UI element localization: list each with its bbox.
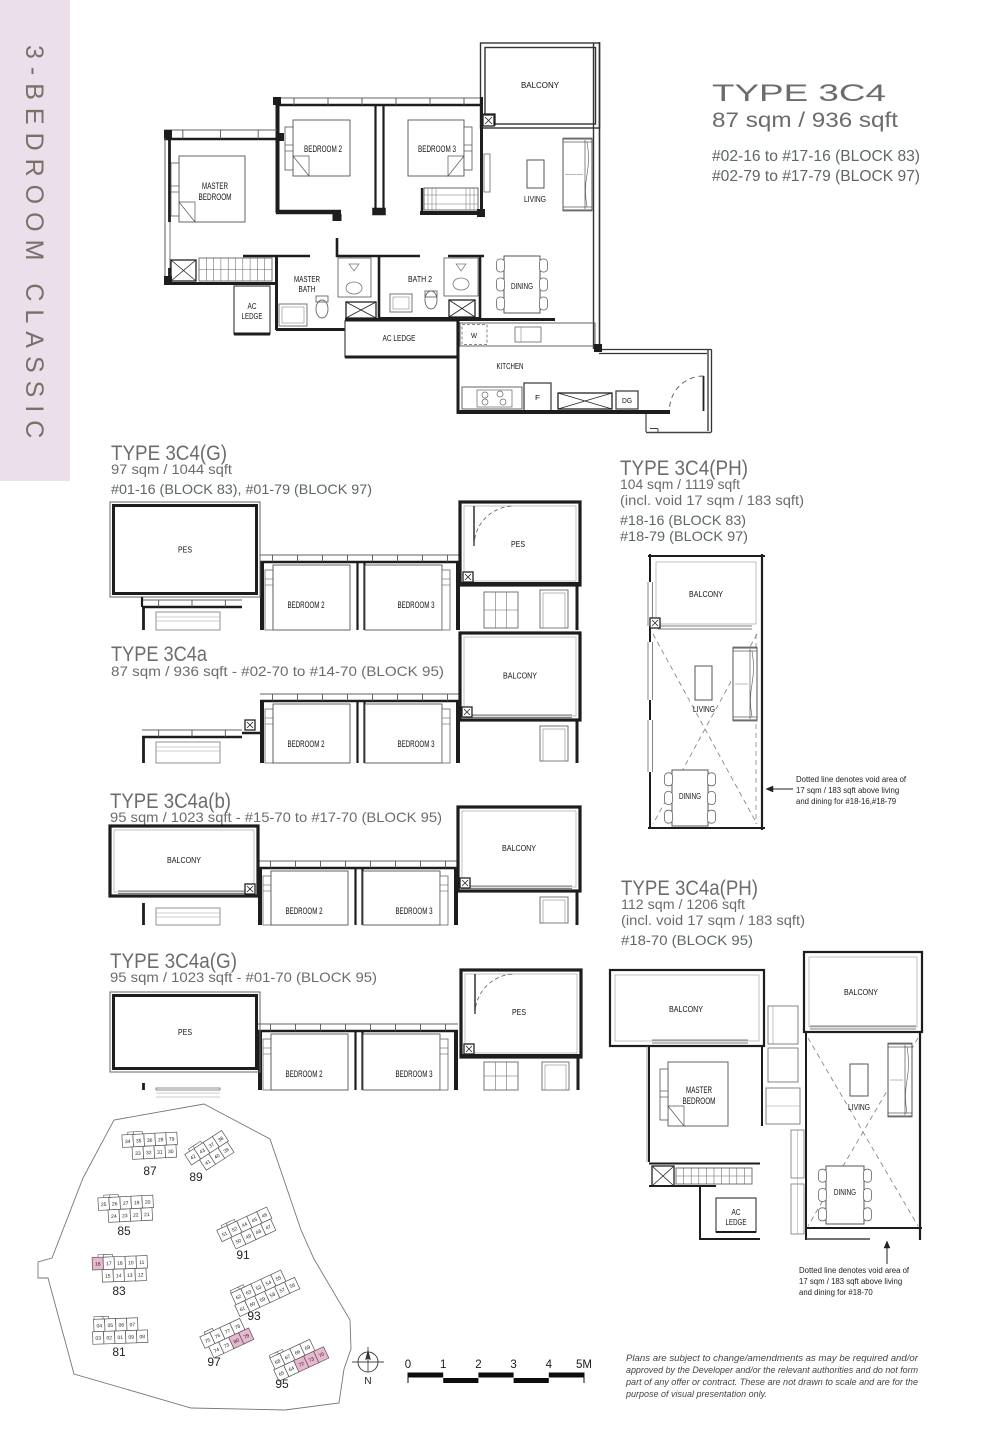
svg-text:DINING: DINING xyxy=(834,1187,856,1197)
svg-text:17: 17 xyxy=(106,1261,112,1267)
svg-text:09: 09 xyxy=(128,1335,134,1341)
svg-text:BATH: BATH xyxy=(299,285,316,294)
svg-text:03: 03 xyxy=(95,1336,101,1342)
svg-text:05: 05 xyxy=(107,1323,113,1329)
svg-text:F: F xyxy=(535,395,540,402)
svg-text:112 sqm / 1206 sqft: 112 sqm / 1206 sqft xyxy=(621,896,745,912)
svg-text:25: 25 xyxy=(101,1202,107,1208)
svg-text:91: 91 xyxy=(236,1248,250,1262)
svg-text:06: 06 xyxy=(118,1323,124,1329)
svg-text:DG: DG xyxy=(622,398,632,405)
svg-text:and dining for #18-70: and dining for #18-70 xyxy=(799,1288,873,1297)
svg-text:BALCONY: BALCONY xyxy=(502,843,536,853)
svg-text:95 sqm / 1023 sqft - #15-70 to: 95 sqm / 1023 sqft - #15-70 to #17-70 (B… xyxy=(110,809,442,825)
svg-text:N: N xyxy=(364,1376,371,1387)
svg-text:87 sqm / 936 sqft: 87 sqm / 936 sqft xyxy=(712,109,898,132)
svg-text:purpose of visual presentation: purpose of visual presentation only. xyxy=(625,1389,767,1399)
svg-text:BALCONY: BALCONY xyxy=(689,589,723,599)
svg-text:#02-16 to #17-16 (BLOCK 83): #02-16 to #17-16 (BLOCK 83) xyxy=(712,148,920,165)
svg-text:5M: 5M xyxy=(576,1359,592,1371)
svg-text:97: 97 xyxy=(207,1355,221,1369)
svg-text:34: 34 xyxy=(125,1139,131,1145)
svg-text:35: 35 xyxy=(136,1138,142,1144)
svg-text:AC LEDGE: AC LEDGE xyxy=(383,334,416,343)
svg-text:15: 15 xyxy=(105,1274,111,1280)
svg-text:BEDROOM 2: BEDROOM 2 xyxy=(286,1069,323,1079)
svg-text:BEDROOM: BEDROOM xyxy=(683,1096,716,1106)
svg-text:33: 33 xyxy=(135,1151,141,1157)
svg-text:89: 89 xyxy=(189,1170,203,1184)
svg-text:BEDROOM 2: BEDROOM 2 xyxy=(304,144,342,154)
svg-text:#18-70 (BLOCK 95): #18-70 (BLOCK 95) xyxy=(621,932,753,948)
svg-text:#18-16 (BLOCK 83): #18-16 (BLOCK 83) xyxy=(620,512,746,528)
svg-text:87: 87 xyxy=(143,1164,157,1178)
svg-text:#18-79 (BLOCK 97): #18-79 (BLOCK 97) xyxy=(620,528,748,544)
svg-text:LIVING: LIVING xyxy=(848,1102,870,1112)
svg-text:95: 95 xyxy=(275,1377,289,1391)
svg-text:04: 04 xyxy=(96,1323,102,1329)
svg-text:87 sqm / 936 sqft - #02-70 to: 87 sqm / 936 sqft - #02-70 to #14-70 (BL… xyxy=(111,663,444,679)
svg-text:36: 36 xyxy=(147,1138,153,1144)
svg-text:BEDROOM 3: BEDROOM 3 xyxy=(398,739,435,749)
svg-text:BALCONY: BALCONY xyxy=(669,1004,703,1014)
svg-text:10: 10 xyxy=(128,1260,134,1266)
svg-text:17 sqm / 183 sqft above livin: 17 sqm / 183 sqft above living xyxy=(799,1277,902,1286)
svg-text:07: 07 xyxy=(129,1322,135,1328)
svg-text:AC: AC xyxy=(248,302,257,311)
svg-text:1: 1 xyxy=(440,1359,446,1371)
svg-text:85: 85 xyxy=(117,1224,131,1238)
svg-text:32: 32 xyxy=(146,1150,152,1156)
svg-text:83: 83 xyxy=(112,1284,126,1298)
svg-text:0: 0 xyxy=(405,1359,411,1371)
svg-text:28: 28 xyxy=(158,1137,164,1143)
svg-text:20: 20 xyxy=(145,1200,151,1206)
svg-text:BEDROOM 3: BEDROOM 3 xyxy=(398,600,435,610)
svg-text:3-BEDROOM CLASSIC: 3-BEDROOM CLASSIC xyxy=(20,45,48,446)
svg-text:BATH 2: BATH 2 xyxy=(408,275,432,284)
svg-text:21: 21 xyxy=(144,1212,150,1218)
svg-text:93: 93 xyxy=(247,1309,261,1323)
svg-text:AC: AC xyxy=(732,1208,741,1217)
svg-text:02: 02 xyxy=(106,1335,112,1341)
svg-text:12: 12 xyxy=(138,1272,144,1278)
svg-text:DINING: DINING xyxy=(511,281,533,291)
svg-text:BALCONY: BALCONY xyxy=(521,80,559,90)
svg-text:104 sqm / 1119 sqft: 104 sqm / 1119 sqft xyxy=(620,476,740,492)
svg-text:BALCONY: BALCONY xyxy=(503,671,537,681)
svg-text:LEDGE: LEDGE xyxy=(242,312,263,321)
svg-text:97 sqm / 1044 sqft: 97 sqm / 1044 sqft xyxy=(111,461,232,477)
svg-text:BEDROOM 2: BEDROOM 2 xyxy=(288,600,325,610)
svg-text:30: 30 xyxy=(168,1149,174,1155)
svg-text:part of any offer or contract.: part of any offer or contract. These are… xyxy=(625,1377,918,1387)
svg-text:4: 4 xyxy=(546,1359,553,1371)
svg-text:PES: PES xyxy=(178,545,192,555)
svg-text:Dotted line denotes void area: Dotted line denotes void area of xyxy=(796,775,907,784)
svg-text:Plans are subject to chang: Plans are subject to change/amendments a… xyxy=(626,1353,919,1363)
svg-text:27: 27 xyxy=(123,1201,129,1207)
svg-text:24: 24 xyxy=(111,1214,117,1220)
svg-text:BEDROOM 3: BEDROOM 3 xyxy=(396,906,433,916)
svg-text:Dotted line denotes void area: Dotted line denotes void area of xyxy=(799,1266,910,1275)
svg-text:BEDROOM 2: BEDROOM 2 xyxy=(288,739,325,749)
svg-text:KITCHEN: KITCHEN xyxy=(497,361,524,371)
svg-text:17 sqm / 183 sqft above livin: 17 sqm / 183 sqft above living xyxy=(796,786,899,795)
svg-text:11: 11 xyxy=(139,1260,145,1266)
svg-text:PES: PES xyxy=(178,1027,192,1037)
svg-text:PES: PES xyxy=(511,539,525,549)
svg-text:#01-16 (BLOCK 83), #01-79 (BLO: #01-16 (BLOCK 83), #01-79 (BLOCK 97) xyxy=(111,481,372,497)
svg-text:16: 16 xyxy=(95,1261,101,1267)
svg-text:BALCONY: BALCONY xyxy=(167,855,201,865)
svg-text:31: 31 xyxy=(157,1150,163,1156)
svg-text:W: W xyxy=(471,333,477,340)
svg-text:approved by the Developer and/: approved by the Developer and/or the rel… xyxy=(626,1365,918,1375)
svg-text:PES: PES xyxy=(512,1007,526,1017)
svg-text:and dining for #18-16,#18-79: and dining for #18-16,#18-79 xyxy=(796,797,896,806)
svg-text:01: 01 xyxy=(117,1335,123,1341)
svg-text:TYPE 3C4: TYPE 3C4 xyxy=(712,80,886,107)
svg-text:13: 13 xyxy=(127,1273,133,1279)
svg-text:2: 2 xyxy=(475,1359,481,1371)
svg-text:BEDROOM: BEDROOM xyxy=(199,192,232,202)
svg-text:(incl. void 17 sqm / 183 sqft): (incl. void 17 sqm / 183 sqft) xyxy=(620,492,804,508)
svg-text:BALCONY: BALCONY xyxy=(844,987,878,997)
svg-text:MASTER: MASTER xyxy=(294,275,320,284)
svg-text:14: 14 xyxy=(116,1273,122,1279)
svg-text:DINING: DINING xyxy=(679,791,701,801)
svg-text:BEDROOM 3: BEDROOM 3 xyxy=(396,1069,433,1079)
svg-text:MASTER: MASTER xyxy=(686,1085,712,1095)
svg-text:MASTER: MASTER xyxy=(202,181,228,191)
svg-text:79: 79 xyxy=(169,1137,175,1143)
svg-text:22: 22 xyxy=(133,1213,139,1219)
svg-text:LIVING: LIVING xyxy=(693,704,715,714)
svg-text:LIVING: LIVING xyxy=(524,194,546,204)
svg-text:19: 19 xyxy=(134,1200,140,1206)
svg-text:LEDGE: LEDGE xyxy=(726,1218,747,1227)
svg-text:81: 81 xyxy=(112,1345,126,1359)
svg-text:08: 08 xyxy=(139,1334,145,1340)
svg-text:95 sqm / 1023 sqft - #01-70 (B: 95 sqm / 1023 sqft - #01-70 (BLOCK 95) xyxy=(110,969,377,985)
svg-text:18: 18 xyxy=(117,1261,123,1267)
svg-text:23: 23 xyxy=(122,1213,128,1219)
svg-text:BEDROOM 2: BEDROOM 2 xyxy=(286,906,323,916)
svg-text:(incl. void 17 sqm / 183 sqft): (incl. void 17 sqm / 183 sqft) xyxy=(621,912,805,928)
svg-text:26: 26 xyxy=(112,1201,118,1207)
svg-text:#02-79 to #17-79 (BLOCK 97): #02-79 to #17-79 (BLOCK 97) xyxy=(712,168,920,185)
svg-text:3: 3 xyxy=(510,1359,516,1371)
svg-text:BEDROOM 3: BEDROOM 3 xyxy=(418,144,456,154)
